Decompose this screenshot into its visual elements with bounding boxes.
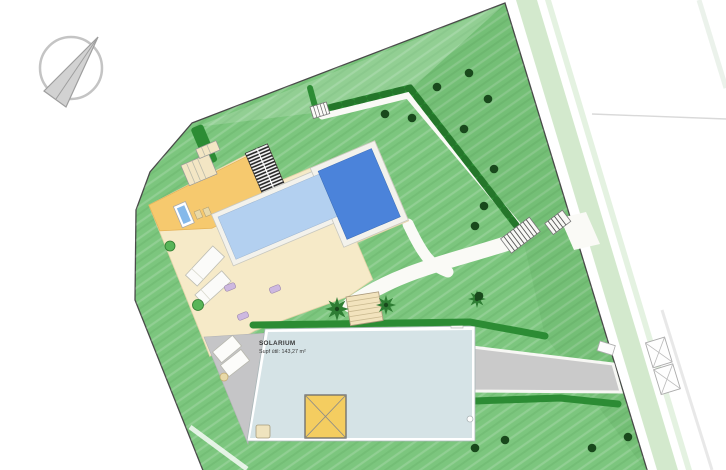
bush-icon [165, 241, 175, 251]
tree-icon [471, 444, 480, 453]
solarium-area-label: Supf útil: 143,27 m² [259, 349, 306, 355]
light-fixture [467, 416, 473, 422]
side-table [220, 373, 228, 381]
palm-trunk [335, 307, 339, 311]
solarium-area: SOLARIUM Supf útil: 143,27 m² [247, 320, 475, 441]
tree-icon [460, 125, 469, 134]
palm-trunk [384, 303, 388, 307]
tree-icon [408, 114, 417, 123]
tree-icon [484, 95, 493, 104]
tree-icon [490, 165, 499, 174]
tree-icon [471, 222, 480, 231]
planter-box [256, 425, 270, 438]
tree-icon [480, 202, 489, 211]
solarium-skylight [305, 395, 346, 438]
terrace-stairs [346, 292, 383, 326]
site-plan: SOLARIUM Supf útil: 143,27 m² [0, 0, 726, 470]
tree-icon [381, 110, 390, 119]
bush-icon [193, 300, 204, 311]
tree-icon [588, 444, 597, 453]
tree-icon [433, 83, 442, 92]
tree-icon [624, 433, 633, 442]
solarium-label: SOLARIUM [259, 340, 295, 347]
tree-icon [475, 292, 484, 301]
tree-icon [465, 69, 474, 78]
tree-icon [501, 436, 510, 445]
